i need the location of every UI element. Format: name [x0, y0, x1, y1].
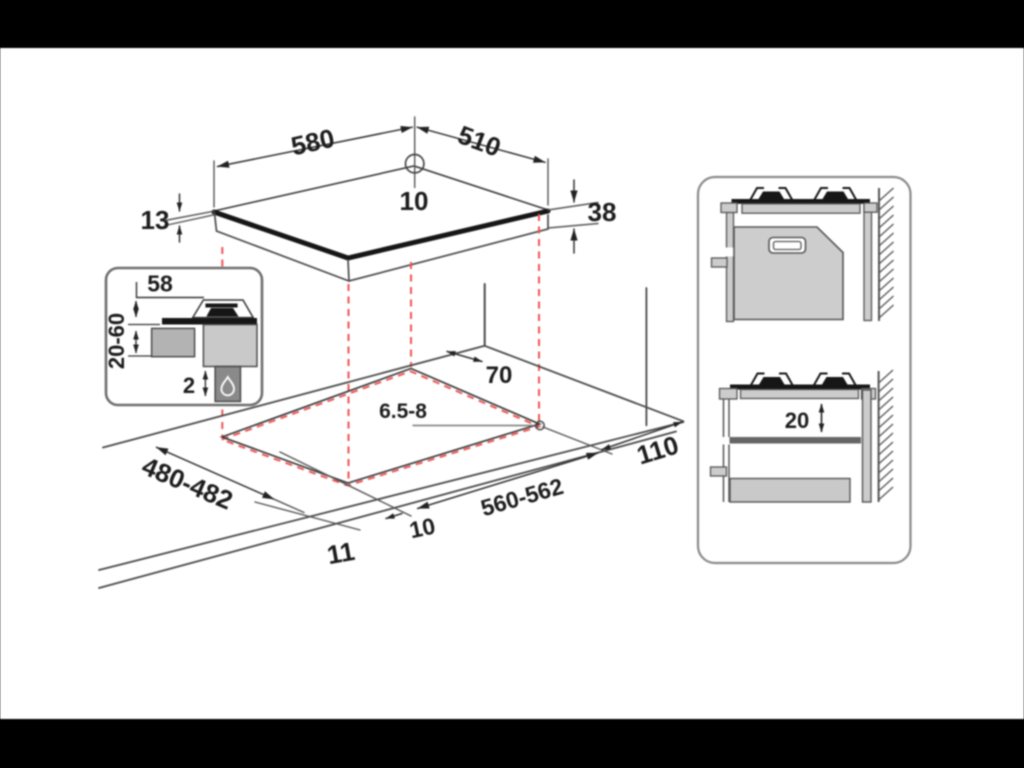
- svg-text:70: 70: [486, 362, 513, 389]
- svg-text:20-60: 20-60: [104, 313, 129, 369]
- svg-text:10: 10: [400, 186, 429, 216]
- svg-text:20: 20: [785, 408, 809, 433]
- svg-text:2: 2: [183, 373, 195, 398]
- svg-text:38: 38: [588, 197, 617, 227]
- svg-text:6.5-8: 6.5-8: [379, 400, 427, 423]
- svg-text:10: 10: [407, 513, 437, 544]
- svg-text:58: 58: [147, 271, 173, 297]
- svg-text:11: 11: [325, 536, 357, 570]
- svg-text:13: 13: [141, 205, 170, 235]
